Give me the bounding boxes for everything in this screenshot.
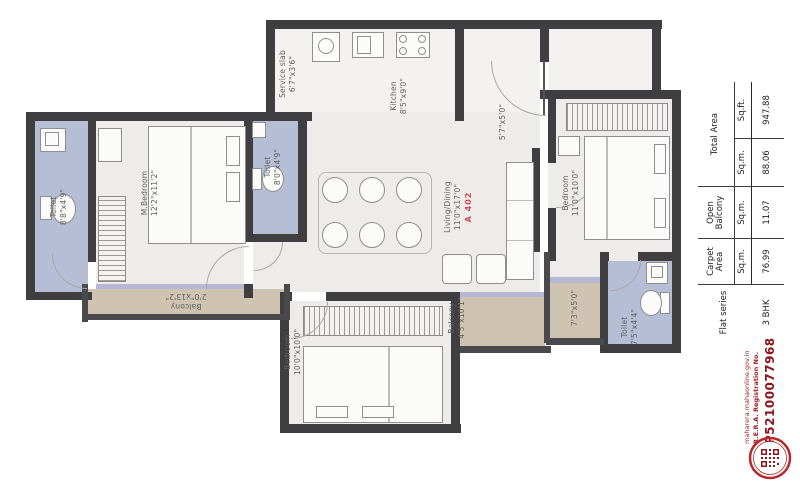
wall (546, 338, 604, 345)
th-carpet-area: Carpet Area (698, 238, 735, 284)
room-name: Bedroom (561, 170, 571, 216)
pillow (654, 144, 666, 174)
wall (298, 112, 307, 240)
room-name: Kitchen (389, 78, 399, 114)
room-dims: 7'3"x5'0" (570, 290, 580, 326)
wardrobe-m-bedroom (98, 196, 126, 282)
wall (600, 344, 681, 353)
room-floor-balcony-bottom (460, 297, 545, 346)
wall (455, 20, 464, 121)
sofa-cushion-line (507, 200, 533, 201)
hob-burner (418, 35, 426, 43)
rera-label: R.E.R.A. Registration No. (752, 330, 761, 444)
qr-stamp-icon (748, 436, 792, 480)
room-dims: 7'5"x4'4" (630, 309, 640, 345)
wall (26, 112, 35, 300)
entry-lobby-floor (549, 29, 652, 90)
room-name: Bedroom (283, 329, 293, 375)
sofa (506, 162, 534, 280)
wall (544, 252, 550, 343)
armchair (442, 254, 472, 284)
value-total-sqm: 88.06 (752, 138, 784, 186)
wall (284, 284, 290, 320)
room-name: M.Bedroom (140, 170, 150, 216)
rera-number: P52100077968 (763, 330, 777, 444)
flat-number: A 402 (464, 181, 475, 233)
washbasin-icon (252, 122, 266, 138)
pillow (316, 406, 348, 418)
dining-chair (359, 177, 385, 203)
room-dims: 8'5"x9'0" (399, 78, 409, 114)
wall (540, 90, 681, 99)
wall (266, 20, 662, 29)
value-open-balcony-sqm: 11.07 (752, 186, 784, 238)
wall (82, 314, 290, 320)
room-dims: 2'0"x13'2" (165, 291, 206, 301)
bed-fold-line (606, 137, 608, 239)
room-name: Toilet (263, 149, 273, 185)
floorplan: Toilet 8'8"x4'9" M.Bedroom 12'2"x11'2" B… (0, 0, 800, 500)
window-balcony-bottom (460, 292, 545, 297)
value-total-sqft: 947.88 (752, 82, 784, 138)
dining-chair (396, 222, 422, 248)
wall (672, 90, 681, 352)
room-dims: 11'0"x17'0" (453, 181, 463, 233)
room-name: Toilet (620, 309, 630, 345)
bed-fold-line (190, 127, 192, 243)
pillow (226, 136, 240, 166)
wall (280, 424, 461, 433)
unit-sqm: Sq.m. (735, 238, 752, 284)
side-table (558, 136, 580, 156)
room-dims: 4'5"x10'1" (457, 297, 467, 338)
unit-sqm: Sq.m. (735, 186, 752, 238)
dining-chair (359, 222, 385, 248)
door-leaf-main-entry (543, 61, 545, 115)
th-open-balcony: Open Balcony (698, 186, 735, 238)
area-table: Flat series Carpet Area Open Balcony Tot… (698, 82, 786, 340)
unit-sqm: Sq.m. (735, 138, 752, 186)
wc-icon (640, 290, 662, 316)
wall (638, 252, 681, 261)
wall (326, 292, 455, 301)
pillow (362, 406, 394, 418)
room-name: Toilet (49, 189, 59, 225)
dining-chair (322, 222, 348, 248)
room-dims: 8'8"x4'9" (59, 189, 69, 225)
wall (652, 20, 661, 99)
dresser-m-bedroom (98, 128, 122, 162)
dining-chair (396, 177, 422, 203)
hob-burner (418, 47, 426, 55)
armchair (476, 254, 506, 284)
hob-burner (399, 47, 407, 55)
room-name: Service slab (278, 50, 288, 98)
pillow (654, 198, 666, 228)
rera-website: maharera.mahaonline.gov.in (743, 330, 752, 444)
wall (88, 117, 96, 262)
wardrobe-bedroom-right (566, 103, 668, 131)
th-total-area: Total Area (698, 82, 735, 186)
room-dims: 11'0"x10'0" (571, 170, 581, 216)
value-carpet-sqm: 76.99 (752, 238, 784, 284)
area-table-grid: Flat series Carpet Area Open Balcony Tot… (698, 82, 786, 340)
wall (540, 20, 549, 62)
hob-burner (399, 35, 407, 43)
room-name: Balcony (447, 297, 457, 338)
sofa-cushion-line (507, 240, 533, 241)
room-dims: 12'2"x11'2" (150, 170, 160, 216)
room-dims: 6'7"x3'6" (288, 50, 298, 98)
rera-block: maharera.mahaonline.gov.in R.E.R.A. Regi… (742, 330, 788, 444)
wall (26, 112, 312, 121)
wall (548, 99, 556, 163)
washing-machine-drum (318, 38, 334, 54)
kitchen-sink-basin (357, 36, 371, 54)
washbasin-bowl (651, 266, 663, 278)
washbasin-bowl (45, 132, 59, 146)
window-balcony-right (550, 277, 602, 283)
wall (244, 234, 307, 242)
wall (451, 346, 551, 353)
room-dims: 10'0"x10'0" (293, 329, 303, 375)
room-name: Living/Dining (443, 181, 453, 233)
dining-chair (322, 177, 348, 203)
pillow (226, 172, 240, 202)
room-dims: 5'7"x5'0" (498, 104, 508, 140)
room-dims: 8'0"x4'9" (273, 149, 283, 185)
wc-tank (252, 168, 262, 190)
wall (266, 20, 275, 121)
unit-sqft: Sq.ft. (735, 82, 752, 138)
room-name: Balcony (165, 301, 206, 311)
